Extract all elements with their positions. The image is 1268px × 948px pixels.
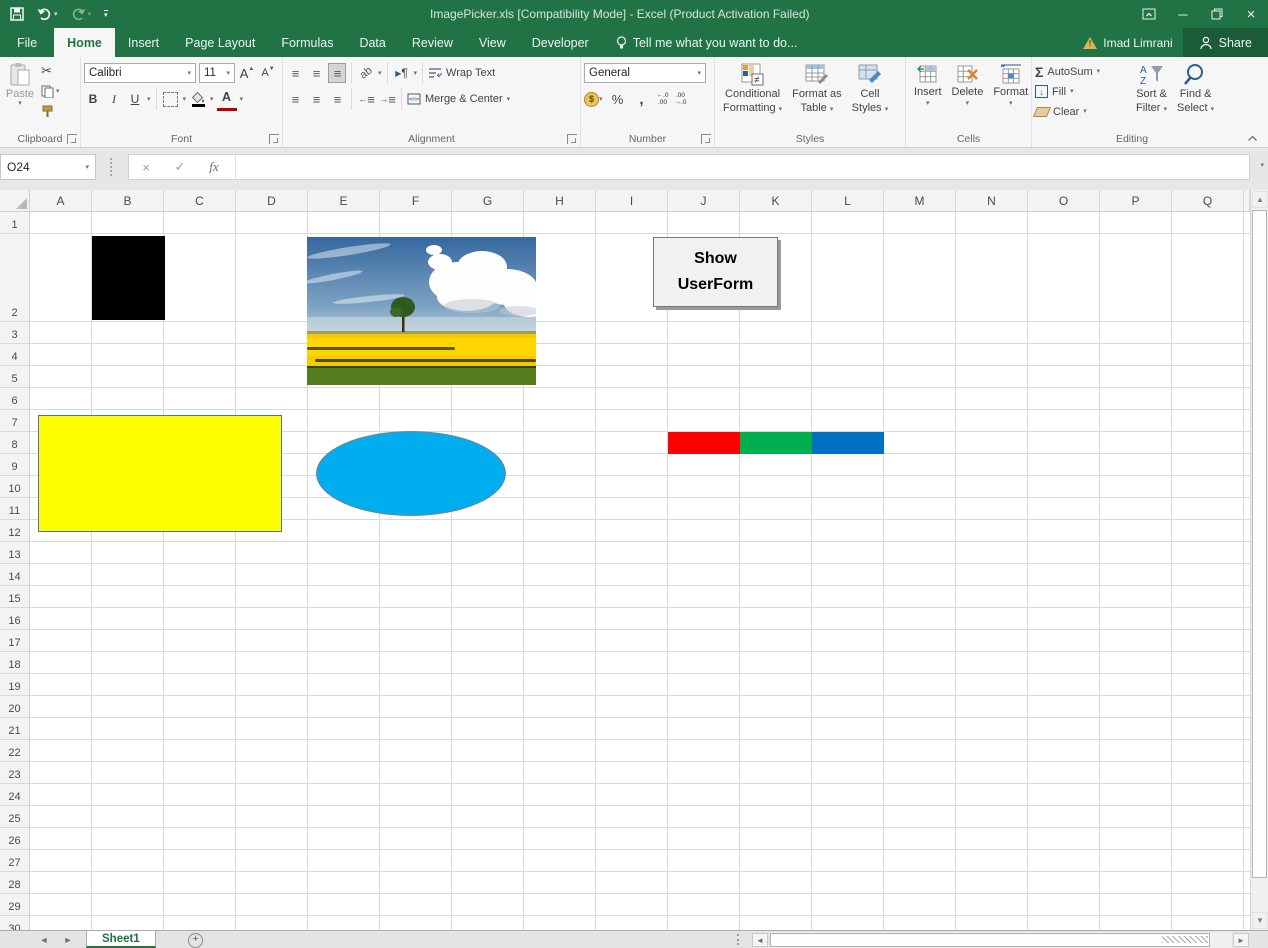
borders-dropdown-icon[interactable]: ▾ <box>183 96 187 103</box>
align-left-button[interactable]: ≡ <box>286 89 304 109</box>
grid-row-16 <box>30 608 1250 630</box>
conditional-formatting-icon: ≠ <box>740 62 766 88</box>
row-header-8[interactable]: 8 <box>0 432 30 454</box>
bold-button[interactable]: B <box>84 89 102 109</box>
copy-button[interactable]: ▾ <box>41 83 60 99</box>
format-painter-icon <box>41 105 54 118</box>
delete-cells-button[interactable]: Delete ▾ <box>947 60 989 132</box>
row-header-19[interactable]: 19 <box>0 674 30 696</box>
column-header-N[interactable]: N <box>956 190 1028 211</box>
text-direction-button[interactable]: ▶¶ <box>393 63 411 83</box>
grow-font-button[interactable]: A▲ <box>238 63 256 83</box>
insert-cells-icon <box>916 62 940 86</box>
row-header-22[interactable]: 22 <box>0 740 30 762</box>
autosum-button[interactable]: ΣAutoSum▾ <box>1035 63 1131 80</box>
row-header-13[interactable]: 13 <box>0 542 30 564</box>
orientation-button[interactable]: ab <box>357 63 375 83</box>
enter-button[interactable]: ✓ <box>163 159 197 175</box>
row-header-16[interactable]: 16 <box>0 608 30 630</box>
grid-row-6 <box>30 388 1250 410</box>
eraser-icon <box>1033 107 1051 117</box>
borders-icon <box>163 92 178 107</box>
percent-style-button[interactable]: % <box>609 89 627 109</box>
dropdown-arrow-icon: ▾ <box>1070 88 1074 95</box>
dropdown-arrow-icon: ▾ <box>926 100 930 107</box>
magnifier-icon <box>1183 62 1209 88</box>
sheet-tab-sheet1[interactable]: Sheet1 <box>86 931 156 948</box>
restore-button[interactable] <box>1200 0 1234 28</box>
select-all-triangle-icon <box>16 198 27 209</box>
column-header-K[interactable]: K <box>740 190 812 211</box>
horizontal-scrollbar-thumb[interactable] <box>770 933 1210 947</box>
scroll-up-icon[interactable]: ▲ <box>1252 191 1268 208</box>
grid-row-22 <box>30 740 1250 762</box>
currency-icon: $ <box>584 92 599 107</box>
blue-filled-cell[interactable] <box>812 432 884 454</box>
grid-column-line-Q <box>1243 212 1244 930</box>
account-name[interactable]: ! Imad Limrani <box>1073 28 1182 57</box>
ribbon-tab-row: File Home Insert Page Layout Formulas Da… <box>0 28 1268 57</box>
row-header-30[interactable]: 30 <box>0 916 30 930</box>
green-filled-cell[interactable] <box>740 432 812 454</box>
row-header-10[interactable]: 10 <box>0 476 30 498</box>
column-header-O[interactable]: O <box>1028 190 1100 211</box>
name-box[interactable]: O24 ▾ <box>0 154 96 180</box>
insert-function-button[interactable]: fx <box>197 159 231 175</box>
dropdown-arrow-icon: ▾ <box>697 70 701 77</box>
share-button[interactable]: Share <box>1183 28 1268 57</box>
title-bar: ▾ ▾ ▾ ImagePicker.xls [Compatibility Mod… <box>0 0 1268 28</box>
sort-filter-icon: AZ <box>1139 62 1165 88</box>
row-header-14[interactable]: 14 <box>0 564 30 586</box>
grid-row-25 <box>30 806 1250 828</box>
name-box-dropdown-icon[interactable]: ▾ <box>85 164 89 171</box>
merge-center-button[interactable]: Merge & Center ▾ <box>407 93 510 105</box>
cut-button[interactable]: ✂ <box>41 63 60 79</box>
separator <box>387 62 388 84</box>
grid-column-line-C <box>235 212 236 930</box>
grid-row-21 <box>30 718 1250 740</box>
dropdown-arrow-icon: ▾ <box>187 70 191 77</box>
separator <box>235 155 236 179</box>
dropdown-arrow-icon: ▾ <box>54 11 58 18</box>
grid-row-26 <box>30 828 1250 850</box>
dropdown-arrow-icon: ▾ <box>1164 106 1168 113</box>
scissors-icon: ✂ <box>41 63 52 79</box>
font-dialog-launcher-icon[interactable] <box>269 134 279 144</box>
sort-filter-button[interactable]: AZ Sort &Filter ▾ <box>1131 60 1172 132</box>
black-image-object[interactable] <box>92 236 165 320</box>
underline-dropdown-icon[interactable]: ▾ <box>147 96 151 103</box>
row-header-27[interactable]: 27 <box>0 850 30 872</box>
grid-column-line-H <box>595 212 596 930</box>
show-userform-button[interactable]: Show UserForm <box>653 237 778 307</box>
column-header-P[interactable]: P <box>1100 190 1172 211</box>
row-header-2[interactable]: 2 <box>0 234 30 322</box>
tab-view[interactable]: View <box>466 28 519 57</box>
column-header-strip: ABCDEFGHIJKLMNOPQ <box>30 190 1250 211</box>
grid-column-line-N <box>1027 212 1028 930</box>
svg-text:≠: ≠ <box>754 75 760 86</box>
tab-review[interactable]: Review <box>399 28 466 57</box>
fill-color-button[interactable] <box>189 89 207 109</box>
column-header-E[interactable]: E <box>308 190 380 211</box>
grid-row-29 <box>30 894 1250 916</box>
font-family-select[interactable]: Calibri▾ <box>84 63 196 83</box>
undo-icon[interactable]: ▾ <box>37 8 58 20</box>
grid-row-24 <box>30 784 1250 806</box>
row-header-29[interactable]: 29 <box>0 894 30 916</box>
column-header-H[interactable]: H <box>524 190 596 211</box>
yellow-rectangle-shape[interactable] <box>38 415 282 532</box>
fill-color-dropdown-icon[interactable]: ▾ <box>210 96 214 103</box>
group-label-font: Font <box>171 133 192 145</box>
number-format-select[interactable]: General▾ <box>584 63 706 83</box>
dropdown-arrow-icon: ▾ <box>1009 100 1013 107</box>
ribbon: Paste ▾ ✂ ▾ Clipboard Cal <box>0 57 1268 148</box>
column-header-C[interactable]: C <box>164 190 236 211</box>
scroll-down-icon[interactable]: ▼ <box>1252 912 1268 929</box>
wrap-text-icon <box>428 67 442 79</box>
new-sheet-button[interactable]: + <box>188 933 203 948</box>
format-cells-button[interactable]: Format ▾ <box>988 60 1033 132</box>
grid-row-18 <box>30 652 1250 674</box>
vertical-scrollbar[interactable]: ▲ ▼ <box>1250 190 1268 930</box>
row-header-15[interactable]: 15 <box>0 586 30 608</box>
format-as-table-button[interactable]: Format asTable ▾ <box>787 60 847 132</box>
svg-text:Z: Z <box>1140 76 1146 87</box>
font-size-select[interactable]: 11▾ <box>199 63 235 83</box>
grid-lines <box>30 212 1250 930</box>
row-header-26[interactable]: 26 <box>0 828 30 850</box>
format-cells-icon <box>999 62 1023 86</box>
row-header-25[interactable]: 25 <box>0 806 30 828</box>
accounting-format-button[interactable]: $▾ <box>584 89 603 109</box>
cell-styles-button[interactable]: CellStyles ▾ <box>847 60 894 132</box>
text-direction-dropdown-icon[interactable]: ▾ <box>414 70 418 77</box>
red-filled-cell[interactable] <box>668 432 740 454</box>
sheet-tab-bar: ◄ ► Sheet1 + ◄ ► <box>0 930 1268 948</box>
select-all-corner[interactable] <box>0 190 30 211</box>
tell-me-box[interactable]: Tell me what you want to do... <box>606 28 808 57</box>
dropdown-arrow-icon: ▾ <box>1211 106 1215 113</box>
grid-row-30 <box>30 916 1250 930</box>
ribbon-group-alignment: ≡ ≡ ≡ ab ▾ ▶¶ ▾ Wrap Text ≡ ≡ ≡ <box>283 57 581 147</box>
column-header-I[interactable]: I <box>596 190 668 211</box>
grid-row-14 <box>30 564 1250 586</box>
bottom-align-button[interactable]: ≡ <box>328 63 346 83</box>
top-align-button[interactable]: ≡ <box>286 63 304 83</box>
formula-bar-row: O24 ▾ × ✓ fx ▾ <box>0 148 1268 190</box>
row-header-5[interactable]: 5 <box>0 366 30 388</box>
grid-column-line-K <box>811 212 812 930</box>
grid-column-line-L <box>883 212 884 930</box>
grid-row-4 <box>30 344 1250 366</box>
formula-bar: × ✓ fx <box>128 154 1250 180</box>
comma-style-button[interactable]: , <box>633 89 651 109</box>
conditional-formatting-button[interactable]: ≠ ConditionalFormatting ▾ <box>718 60 787 132</box>
row-headers: 1234567891011121314151617181920212223242… <box>0 212 30 930</box>
formula-input[interactable] <box>240 155 1249 179</box>
ribbon-group-editing: ΣAutoSum▾ ↓Fill▾ Clear▾ AZ Sort &Filter … <box>1032 57 1232 147</box>
column-header-F[interactable]: F <box>380 190 452 211</box>
row-header-4[interactable]: 4 <box>0 344 30 366</box>
grid-column-line-J <box>739 212 740 930</box>
column-header-B[interactable]: B <box>92 190 164 211</box>
window-controls: ─ × <box>1132 0 1268 28</box>
grid-column-line-O <box>1099 212 1100 930</box>
increase-indent-button[interactable]: →≡ <box>378 89 396 109</box>
tab-page-layout[interactable]: Page Layout <box>172 28 268 57</box>
underline-button[interactable]: U <box>126 89 144 109</box>
person-icon <box>1199 36 1213 50</box>
fill-down-icon: ↓ <box>1035 85 1048 98</box>
ribbon-group-number: General▾ $▾ % , ←.0.00 .00→.0 Number <box>581 57 715 147</box>
row-header-7[interactable]: 7 <box>0 410 30 432</box>
collapse-ribbon-icon[interactable] <box>1247 135 1258 142</box>
grid-column-line-I <box>667 212 668 930</box>
grid-row-13 <box>30 542 1250 564</box>
clipboard-icon <box>9 62 31 88</box>
tab-data[interactable]: Data <box>346 28 398 57</box>
minimize-button[interactable]: ─ <box>1166 0 1200 28</box>
formula-bar-drag-handle[interactable] <box>110 158 112 176</box>
group-label-number: Number <box>629 133 666 145</box>
group-label-alignment: Alignment <box>408 133 455 145</box>
separator <box>351 62 352 84</box>
row-header-17[interactable]: 17 <box>0 630 30 652</box>
align-right-button[interactable]: ≡ <box>328 89 346 109</box>
format-painter-button[interactable] <box>41 103 60 119</box>
borders-button[interactable] <box>162 89 180 109</box>
grid-row-15 <box>30 586 1250 608</box>
ribbon-group-font: Calibri▾ 11▾ A▲ A▼ B I U ▾ ▾ ▾ A ▾ Fon <box>81 57 283 147</box>
grid-column-line-M <box>955 212 956 930</box>
svg-text:A: A <box>1140 65 1147 76</box>
column-header-Q[interactable]: Q <box>1172 190 1244 211</box>
grid-column-line-P <box>1171 212 1172 930</box>
sheet-nav-right-icon[interactable]: ► <box>58 932 78 948</box>
align-center-button[interactable]: ≡ <box>307 89 325 109</box>
wrap-text-button[interactable]: Wrap Text <box>428 67 495 79</box>
clear-button[interactable]: Clear▾ <box>1035 103 1131 120</box>
number-dialog-launcher-icon[interactable] <box>701 134 711 144</box>
insert-cells-button[interactable]: Insert ▾ <box>909 60 947 132</box>
row-header-12[interactable]: 12 <box>0 520 30 542</box>
dropdown-arrow-icon: ▾ <box>830 106 834 113</box>
decrease-decimal-button[interactable]: .00→.0 <box>674 92 686 106</box>
paint-bucket-icon <box>191 92 206 107</box>
tab-insert[interactable]: Insert <box>115 28 172 57</box>
ribbon-group-cells: Insert ▾ Delete ▾ Format ▾ Cells <box>906 57 1032 147</box>
column-header-D[interactable]: D <box>236 190 308 211</box>
grid-row-19 <box>30 674 1250 696</box>
merge-center-icon <box>407 93 421 105</box>
row-header-3[interactable]: 3 <box>0 322 30 344</box>
grid-row-2 <box>30 234 1250 322</box>
tab-formulas[interactable]: Formulas <box>268 28 346 57</box>
group-label-editing: Editing <box>1116 133 1148 145</box>
group-label-clipboard: Clipboard <box>18 133 63 145</box>
ribbon-display-options-icon[interactable] <box>1132 0 1166 28</box>
scroll-left-icon[interactable]: ◄ <box>752 933 768 947</box>
dropdown-arrow-icon: ▾ <box>966 100 970 107</box>
column-header-M[interactable]: M <box>884 190 956 211</box>
row-header-24[interactable]: 24 <box>0 784 30 806</box>
close-button[interactable]: × <box>1234 0 1268 28</box>
row-header-28[interactable]: 28 <box>0 872 30 894</box>
grid-row-1 <box>30 212 1250 234</box>
paste-button[interactable]: Paste ▾ <box>3 60 37 119</box>
separator <box>351 88 352 110</box>
blue-oval-shape[interactable] <box>316 431 506 516</box>
increase-decimal-button[interactable]: ←.0.00 <box>657 92 669 106</box>
orientation-dropdown-icon[interactable]: ▾ <box>378 70 382 77</box>
column-headers: ABCDEFGHIJKLMNOPQ <box>0 190 1250 212</box>
redo-icon[interactable]: ▾ <box>71 8 92 20</box>
row-header-23[interactable]: 23 <box>0 762 30 784</box>
tab-scroll-splitter[interactable] <box>737 934 739 945</box>
dropdown-arrow-icon: ▾ <box>885 106 889 113</box>
tab-home[interactable]: Home <box>54 28 115 57</box>
dropdown-arrow-icon: ▾ <box>1083 108 1087 115</box>
sigma-icon: Σ <box>1035 65 1043 79</box>
separator <box>422 62 423 84</box>
landscape-photo[interactable] <box>307 237 536 385</box>
save-icon[interactable] <box>10 7 24 21</box>
grid-row-28 <box>30 872 1250 894</box>
cells-area[interactable]: Show UserForm <box>30 212 1250 930</box>
separator <box>401 88 402 110</box>
find-select-button[interactable]: Find &Select ▾ <box>1172 60 1219 132</box>
cancel-button[interactable]: × <box>129 160 163 175</box>
row-header-11[interactable]: 11 <box>0 498 30 520</box>
horizontal-scrollbar[interactable] <box>770 932 1232 948</box>
format-as-table-icon <box>804 62 830 88</box>
separator <box>156 88 157 110</box>
group-label-cells: Cells <box>957 133 980 145</box>
row-header-18[interactable]: 18 <box>0 652 30 674</box>
row-header-9[interactable]: 9 <box>0 454 30 476</box>
font-color-dropdown-icon[interactable]: ▾ <box>240 96 244 103</box>
font-color-button[interactable]: A <box>217 88 237 111</box>
column-header-G[interactable]: G <box>452 190 524 211</box>
row-header-6[interactable]: 6 <box>0 388 30 410</box>
scroll-right-icon[interactable]: ► <box>1233 933 1249 947</box>
vertical-scrollbar-thumb[interactable] <box>1252 210 1267 878</box>
quick-access-toolbar: ▾ ▾ ▾ <box>10 7 108 21</box>
fill-button[interactable]: ↓Fill▾ <box>1035 83 1131 100</box>
dropdown-arrow-icon: ▾ <box>88 11 92 18</box>
italic-button[interactable]: I <box>105 89 123 109</box>
tab-developer[interactable]: Developer <box>519 28 602 57</box>
window-title: ImagePicker.xls [Compatibility Mode] - E… <box>108 7 1132 21</box>
row-header-1[interactable]: 1 <box>0 212 30 234</box>
grid-row-3 <box>30 322 1250 344</box>
clipboard-dialog-launcher-icon[interactable] <box>67 134 77 144</box>
row-header-20[interactable]: 20 <box>0 696 30 718</box>
column-header-L[interactable]: L <box>812 190 884 211</box>
spreadsheet-grid[interactable]: 1234567891011121314151617181920212223242… <box>0 212 1250 930</box>
expand-formula-bar-icon[interactable]: ▾ <box>1260 162 1264 169</box>
grid-row-27 <box>30 850 1250 872</box>
dropdown-arrow-icon: ▾ <box>1097 68 1101 75</box>
shrink-font-button[interactable]: A▼ <box>259 63 277 83</box>
grid-row-17 <box>30 630 1250 652</box>
decrease-indent-button[interactable]: ←≡ <box>357 89 375 109</box>
tab-file[interactable]: File <box>0 28 54 57</box>
dropdown-arrow-icon: ▾ <box>18 100 22 107</box>
column-header-J[interactable]: J <box>668 190 740 211</box>
excel-window: ▾ ▾ ▾ ImagePicker.xls [Compatibility Mod… <box>0 0 1268 948</box>
lightbulb-icon <box>616 36 627 50</box>
grid-row-23 <box>30 762 1250 784</box>
group-label-styles: Styles <box>796 133 825 145</box>
scrollbar-resize-dots[interactable] <box>1162 936 1208 943</box>
sheet-nav-left-icon[interactable]: ◄ <box>34 932 54 948</box>
warning-icon: ! <box>1083 37 1097 49</box>
grid-row-5 <box>30 366 1250 388</box>
middle-align-button[interactable]: ≡ <box>307 63 325 83</box>
grid-row-20 <box>30 696 1250 718</box>
cell-styles-icon <box>857 62 883 88</box>
alignment-dialog-launcher-icon[interactable] <box>567 134 577 144</box>
row-header-21[interactable]: 21 <box>0 718 30 740</box>
dropdown-arrow-icon: ▾ <box>599 96 603 103</box>
merge-center-dropdown-icon[interactable]: ▾ <box>507 96 511 103</box>
dropdown-arrow-icon: ▾ <box>779 106 783 113</box>
ribbon-group-styles: ≠ ConditionalFormatting ▾ Format asTable… <box>715 57 906 147</box>
dropdown-arrow-icon: ▾ <box>56 88 60 95</box>
delete-cells-icon <box>955 62 979 86</box>
column-header-A[interactable]: A <box>30 190 92 211</box>
ribbon-group-clipboard: Paste ▾ ✂ ▾ Clipboard <box>0 57 81 147</box>
copy-icon <box>41 85 54 98</box>
dropdown-arrow-icon: ▾ <box>226 70 230 77</box>
